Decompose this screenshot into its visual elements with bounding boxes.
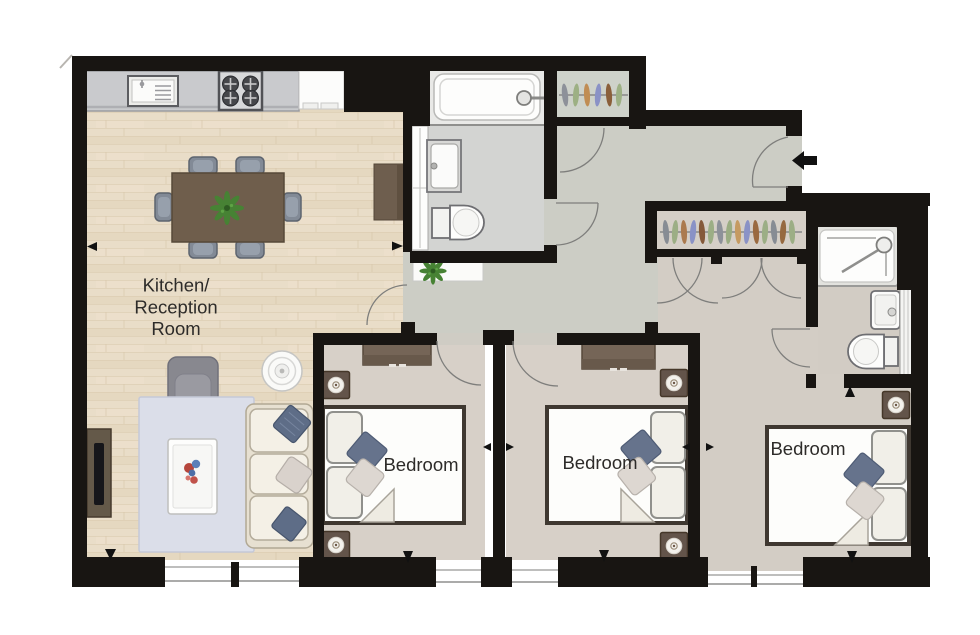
svg-text:Kitchen/: Kitchen/ (143, 275, 211, 296)
svg-text:Bedroom: Bedroom (562, 452, 637, 473)
svg-text:Bedroom: Bedroom (770, 438, 845, 459)
svg-text:Bedroom: Bedroom (383, 454, 458, 475)
svg-text:Room: Room (151, 318, 200, 339)
svg-text:Reception: Reception (134, 297, 217, 318)
